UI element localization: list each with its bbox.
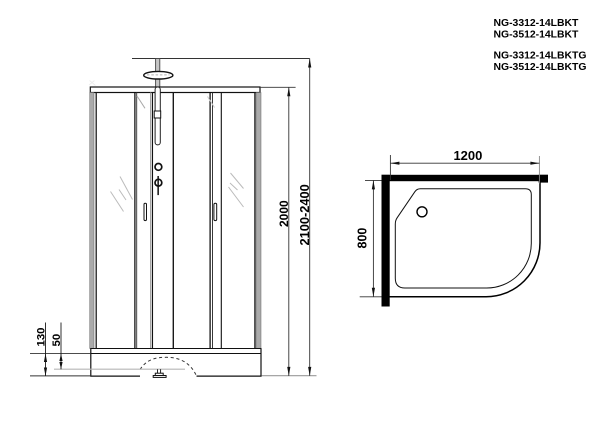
svg-text:NG-3512-14LBKT: NG-3512-14LBKT bbox=[494, 30, 580, 41]
svg-text:800: 800 bbox=[356, 228, 370, 249]
svg-text:2100-2400: 2100-2400 bbox=[297, 184, 312, 245]
svg-text:50: 50 bbox=[51, 334, 63, 347]
svg-text:130: 130 bbox=[35, 327, 47, 346]
svg-text:NG-3512-14LBKTG: NG-3512-14LBKTG bbox=[494, 62, 587, 73]
svg-text:NG-3312-14LBKT: NG-3312-14LBKT bbox=[494, 18, 580, 29]
svg-text:NG-3312-14LBKTG: NG-3312-14LBKTG bbox=[494, 50, 587, 61]
svg-text:1200: 1200 bbox=[453, 148, 482, 163]
svg-text:2000: 2000 bbox=[277, 200, 291, 227]
